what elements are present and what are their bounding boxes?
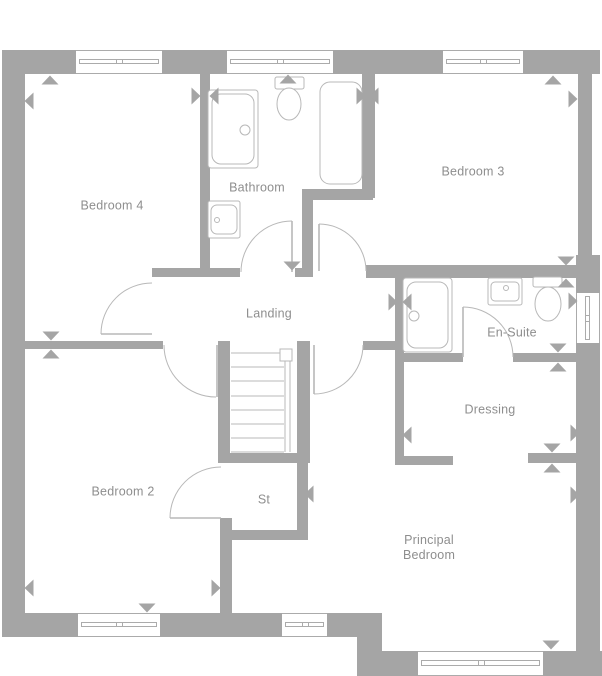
room-label-bathroom: Bathroom	[229, 181, 285, 196]
room-label-store: St	[258, 493, 270, 508]
room-label-bedroom-4: Bedroom 4	[81, 199, 144, 214]
room-label-bedroom-2: Bedroom 2	[92, 485, 155, 500]
room-label-bedroom-3: Bedroom 3	[442, 165, 505, 180]
room-label-en-suite: En-Suite	[487, 326, 537, 341]
room-labels-layer: Bedroom 4BathroomBedroom 3LandingEn-Suit…	[0, 0, 602, 676]
room-label-landing: Landing	[246, 307, 292, 322]
room-label-dressing: Dressing	[465, 403, 516, 418]
room-label-principal-bedroom: Principal Bedroom	[403, 533, 455, 563]
floorplan: Bedroom 4BathroomBedroom 3LandingEn-Suit…	[0, 0, 602, 676]
